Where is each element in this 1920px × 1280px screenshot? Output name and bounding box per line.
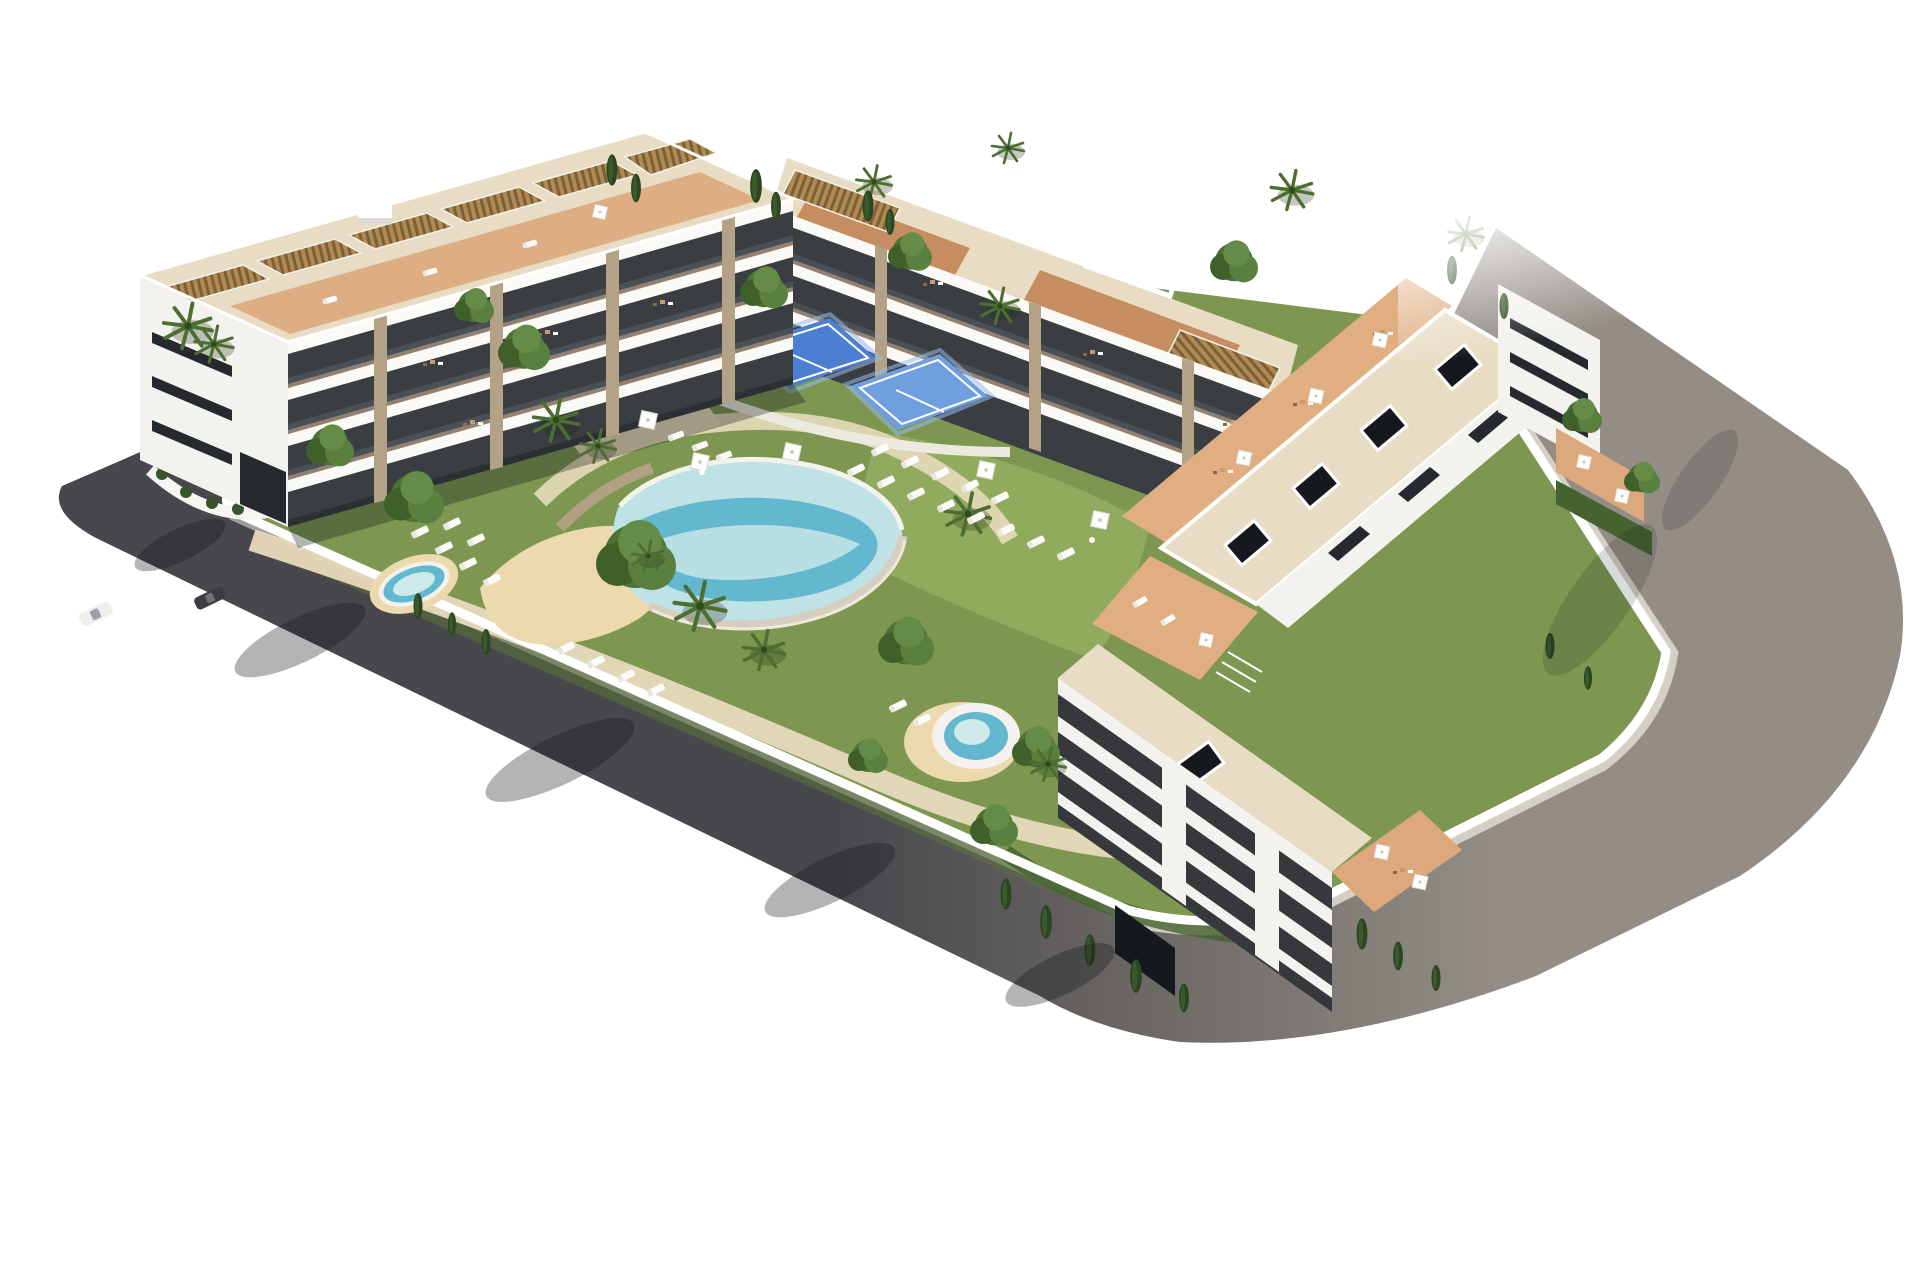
building-west-rooftop-cube xyxy=(358,198,392,224)
render-image xyxy=(0,0,1920,1280)
spa-pool xyxy=(904,702,1020,782)
complex-render-svg xyxy=(0,0,1920,1280)
road-fade xyxy=(1398,150,1628,360)
